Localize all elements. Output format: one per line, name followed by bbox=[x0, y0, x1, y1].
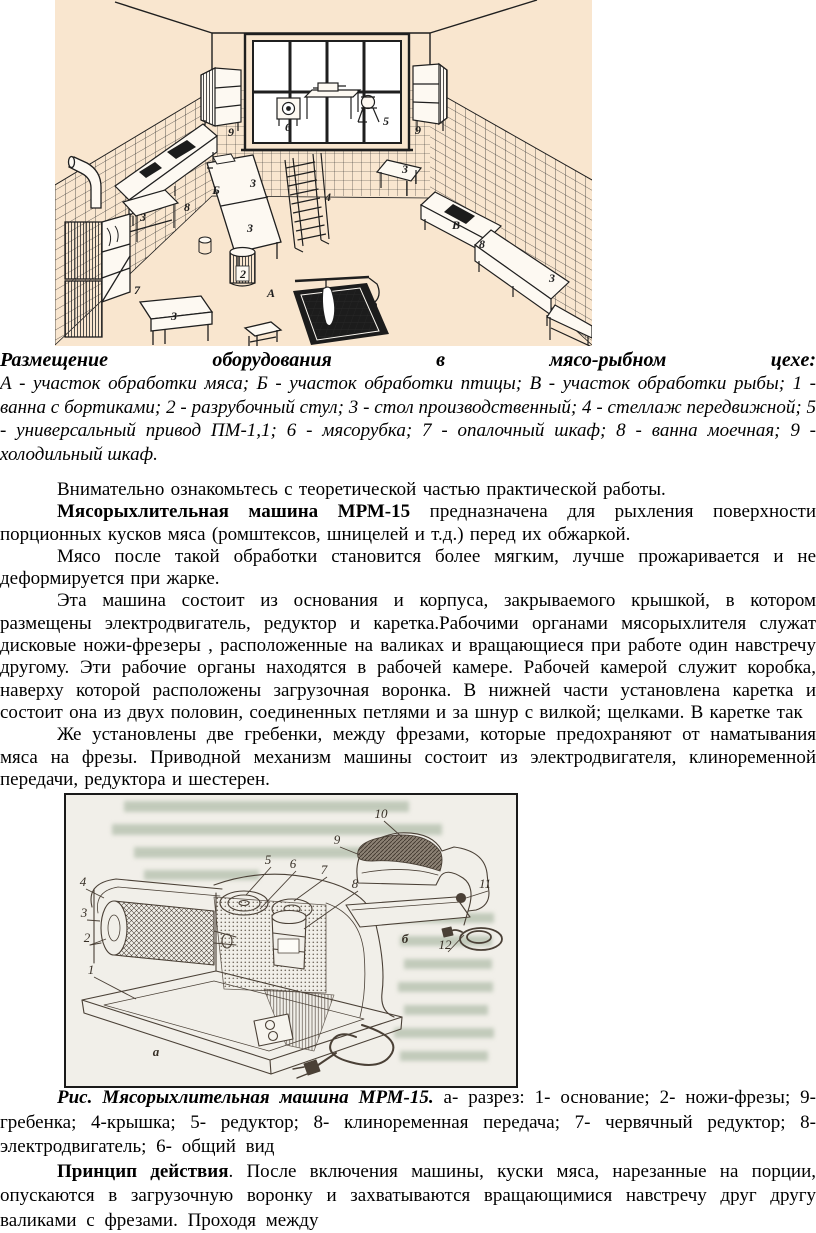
machine-callout-number: 3 bbox=[80, 905, 88, 920]
paragraph-intro-text: Внимательно ознакомьтесь с теоретической… bbox=[57, 479, 666, 500]
figure-mrm15-machine: 432156789101112аб bbox=[64, 793, 518, 1088]
workshop-part-label: 3 bbox=[139, 210, 146, 224]
workshop-part-label: 3 bbox=[401, 162, 408, 176]
machine-callout-number: 12 bbox=[439, 937, 453, 952]
paragraph-meat-effect-text: Мясо после такой обработки становится бо… bbox=[0, 546, 816, 589]
machine-callout-number: 9 bbox=[334, 832, 341, 847]
machine-name-bold: Мясорыхлительная машина МРМ-15 bbox=[57, 501, 410, 522]
gear-train bbox=[214, 891, 326, 993]
machine-callout-number: 5 bbox=[265, 852, 272, 867]
document-page: { "document": { "language": "ru", "page_… bbox=[0, 0, 816, 1222]
machine-callout-number: 4 bbox=[80, 874, 87, 889]
workshop-part-label: 8 bbox=[184, 200, 190, 214]
workshop-part-label: 3 bbox=[548, 271, 555, 285]
paragraph-construction-text: Эта машина состоит из основания и корпус… bbox=[0, 590, 816, 722]
figure1-caption-legend: А - участок обработки мяса; Б - участок … bbox=[0, 372, 816, 466]
workshop-part-label: В bbox=[451, 218, 460, 232]
workshop-part-label: 6 bbox=[285, 120, 291, 134]
paragraph-combs-drive: Же установлены две гребенки, между фреза… bbox=[0, 724, 816, 791]
workshop-part-label: 3 bbox=[246, 221, 253, 235]
workshop-part-label: 8 bbox=[479, 237, 485, 251]
paragraph-machine-purpose: Мясорыхлительная машина МРМ-15 предназна… bbox=[0, 501, 816, 546]
workshop-part-label: 5 bbox=[383, 114, 389, 128]
paragraph-meat-effect: Мясо после такой обработки становится бо… bbox=[0, 546, 816, 591]
figure2-caption: Рис. Мясорыхлительная машина МРМ-15. а- … bbox=[0, 1086, 816, 1160]
figure1-caption: Размещение оборудования в мясо-рыбном це… bbox=[0, 348, 816, 466]
workshop-part-label: А bbox=[266, 286, 275, 300]
machine-callout-number: 11 bbox=[479, 876, 491, 891]
machine-view-letter: б bbox=[402, 931, 409, 946]
workshop-part-label: 9 bbox=[228, 125, 234, 139]
mrm15-machine-drawing: 432156789101112аб bbox=[64, 793, 518, 1088]
workshop-part-label: 2 bbox=[239, 267, 246, 281]
workshop-part-label: 7 bbox=[134, 283, 141, 297]
figure1-caption-title: Размещение оборудования в мясо-рыбном це… bbox=[0, 348, 816, 372]
machine-callout-number: 1 bbox=[88, 962, 95, 977]
workshop-part-label: 3 bbox=[249, 176, 256, 190]
figure-workshop-layout: 9Б83736593342А3В83 bbox=[55, 0, 592, 346]
workshop-part-label: 4 bbox=[324, 190, 331, 204]
paragraph-combs-drive-text: Же установлены две гребенки, между фреза… bbox=[0, 724, 816, 790]
machine-callout-number: 6 bbox=[290, 856, 297, 871]
figure2-caption-bold: Рис. Мясорыхлительная машина МРМ-15. bbox=[57, 1087, 434, 1108]
machine-callout-number: 10 bbox=[375, 806, 389, 821]
machine-view-letter: а bbox=[153, 1044, 160, 1059]
paragraph-construction: Эта машина состоит из основания и корпус… bbox=[0, 590, 816, 724]
paragraph-intro: Внимательно ознакомьтесь с теоретической… bbox=[0, 479, 816, 501]
fridge-left bbox=[201, 68, 241, 131]
machine-callout-number: 7 bbox=[321, 862, 328, 877]
workshop-layout-drawing: 9Б83736593342А3В83 bbox=[55, 0, 592, 346]
workshop-part-label: 9 bbox=[415, 123, 421, 137]
machine-callout-number: 8 bbox=[352, 876, 359, 891]
motor bbox=[272, 911, 306, 970]
body-text: Внимательно ознакомьтесь с теоретической… bbox=[0, 479, 816, 791]
principle-heading-bold: Принцип действия bbox=[57, 1161, 229, 1182]
figure2-caption-and-principle: Рис. Мясорыхлительная машина МРМ-15. а- … bbox=[0, 1086, 816, 1233]
workshop-part-label: Б bbox=[211, 183, 220, 197]
workshop-part-label: 3 bbox=[170, 309, 177, 323]
machine-callout-number: 2 bbox=[84, 930, 91, 945]
